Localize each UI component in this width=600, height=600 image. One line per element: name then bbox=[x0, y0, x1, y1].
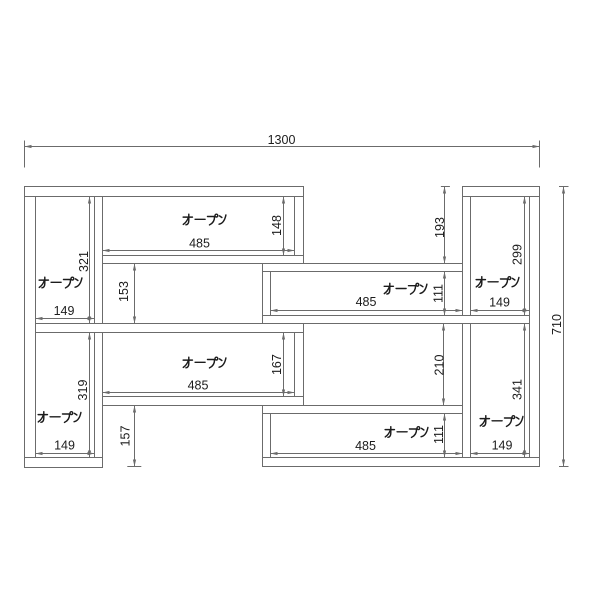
svg-text:210: 210 bbox=[432, 355, 446, 376]
svg-text:157: 157 bbox=[118, 426, 132, 447]
svg-text:1300: 1300 bbox=[268, 133, 296, 147]
svg-text:299: 299 bbox=[510, 244, 524, 265]
svg-text:149: 149 bbox=[489, 295, 510, 309]
svg-text:710: 710 bbox=[550, 314, 564, 335]
svg-text:149: 149 bbox=[54, 439, 75, 453]
svg-text:485: 485 bbox=[188, 379, 209, 393]
svg-text:319: 319 bbox=[76, 380, 90, 401]
svg-text:111: 111 bbox=[432, 425, 446, 444]
svg-text:485: 485 bbox=[355, 439, 376, 453]
svg-text:167: 167 bbox=[270, 354, 284, 375]
svg-text:341: 341 bbox=[510, 379, 524, 400]
svg-text:321: 321 bbox=[77, 251, 91, 272]
svg-text:111: 111 bbox=[431, 284, 445, 303]
svg-text:153: 153 bbox=[117, 281, 131, 302]
svg-text:148: 148 bbox=[270, 215, 284, 236]
svg-text:485: 485 bbox=[356, 295, 377, 309]
svg-text:149: 149 bbox=[492, 439, 513, 453]
svg-text:485: 485 bbox=[189, 237, 210, 251]
svg-text:193: 193 bbox=[433, 217, 447, 238]
svg-text:149: 149 bbox=[54, 304, 75, 318]
